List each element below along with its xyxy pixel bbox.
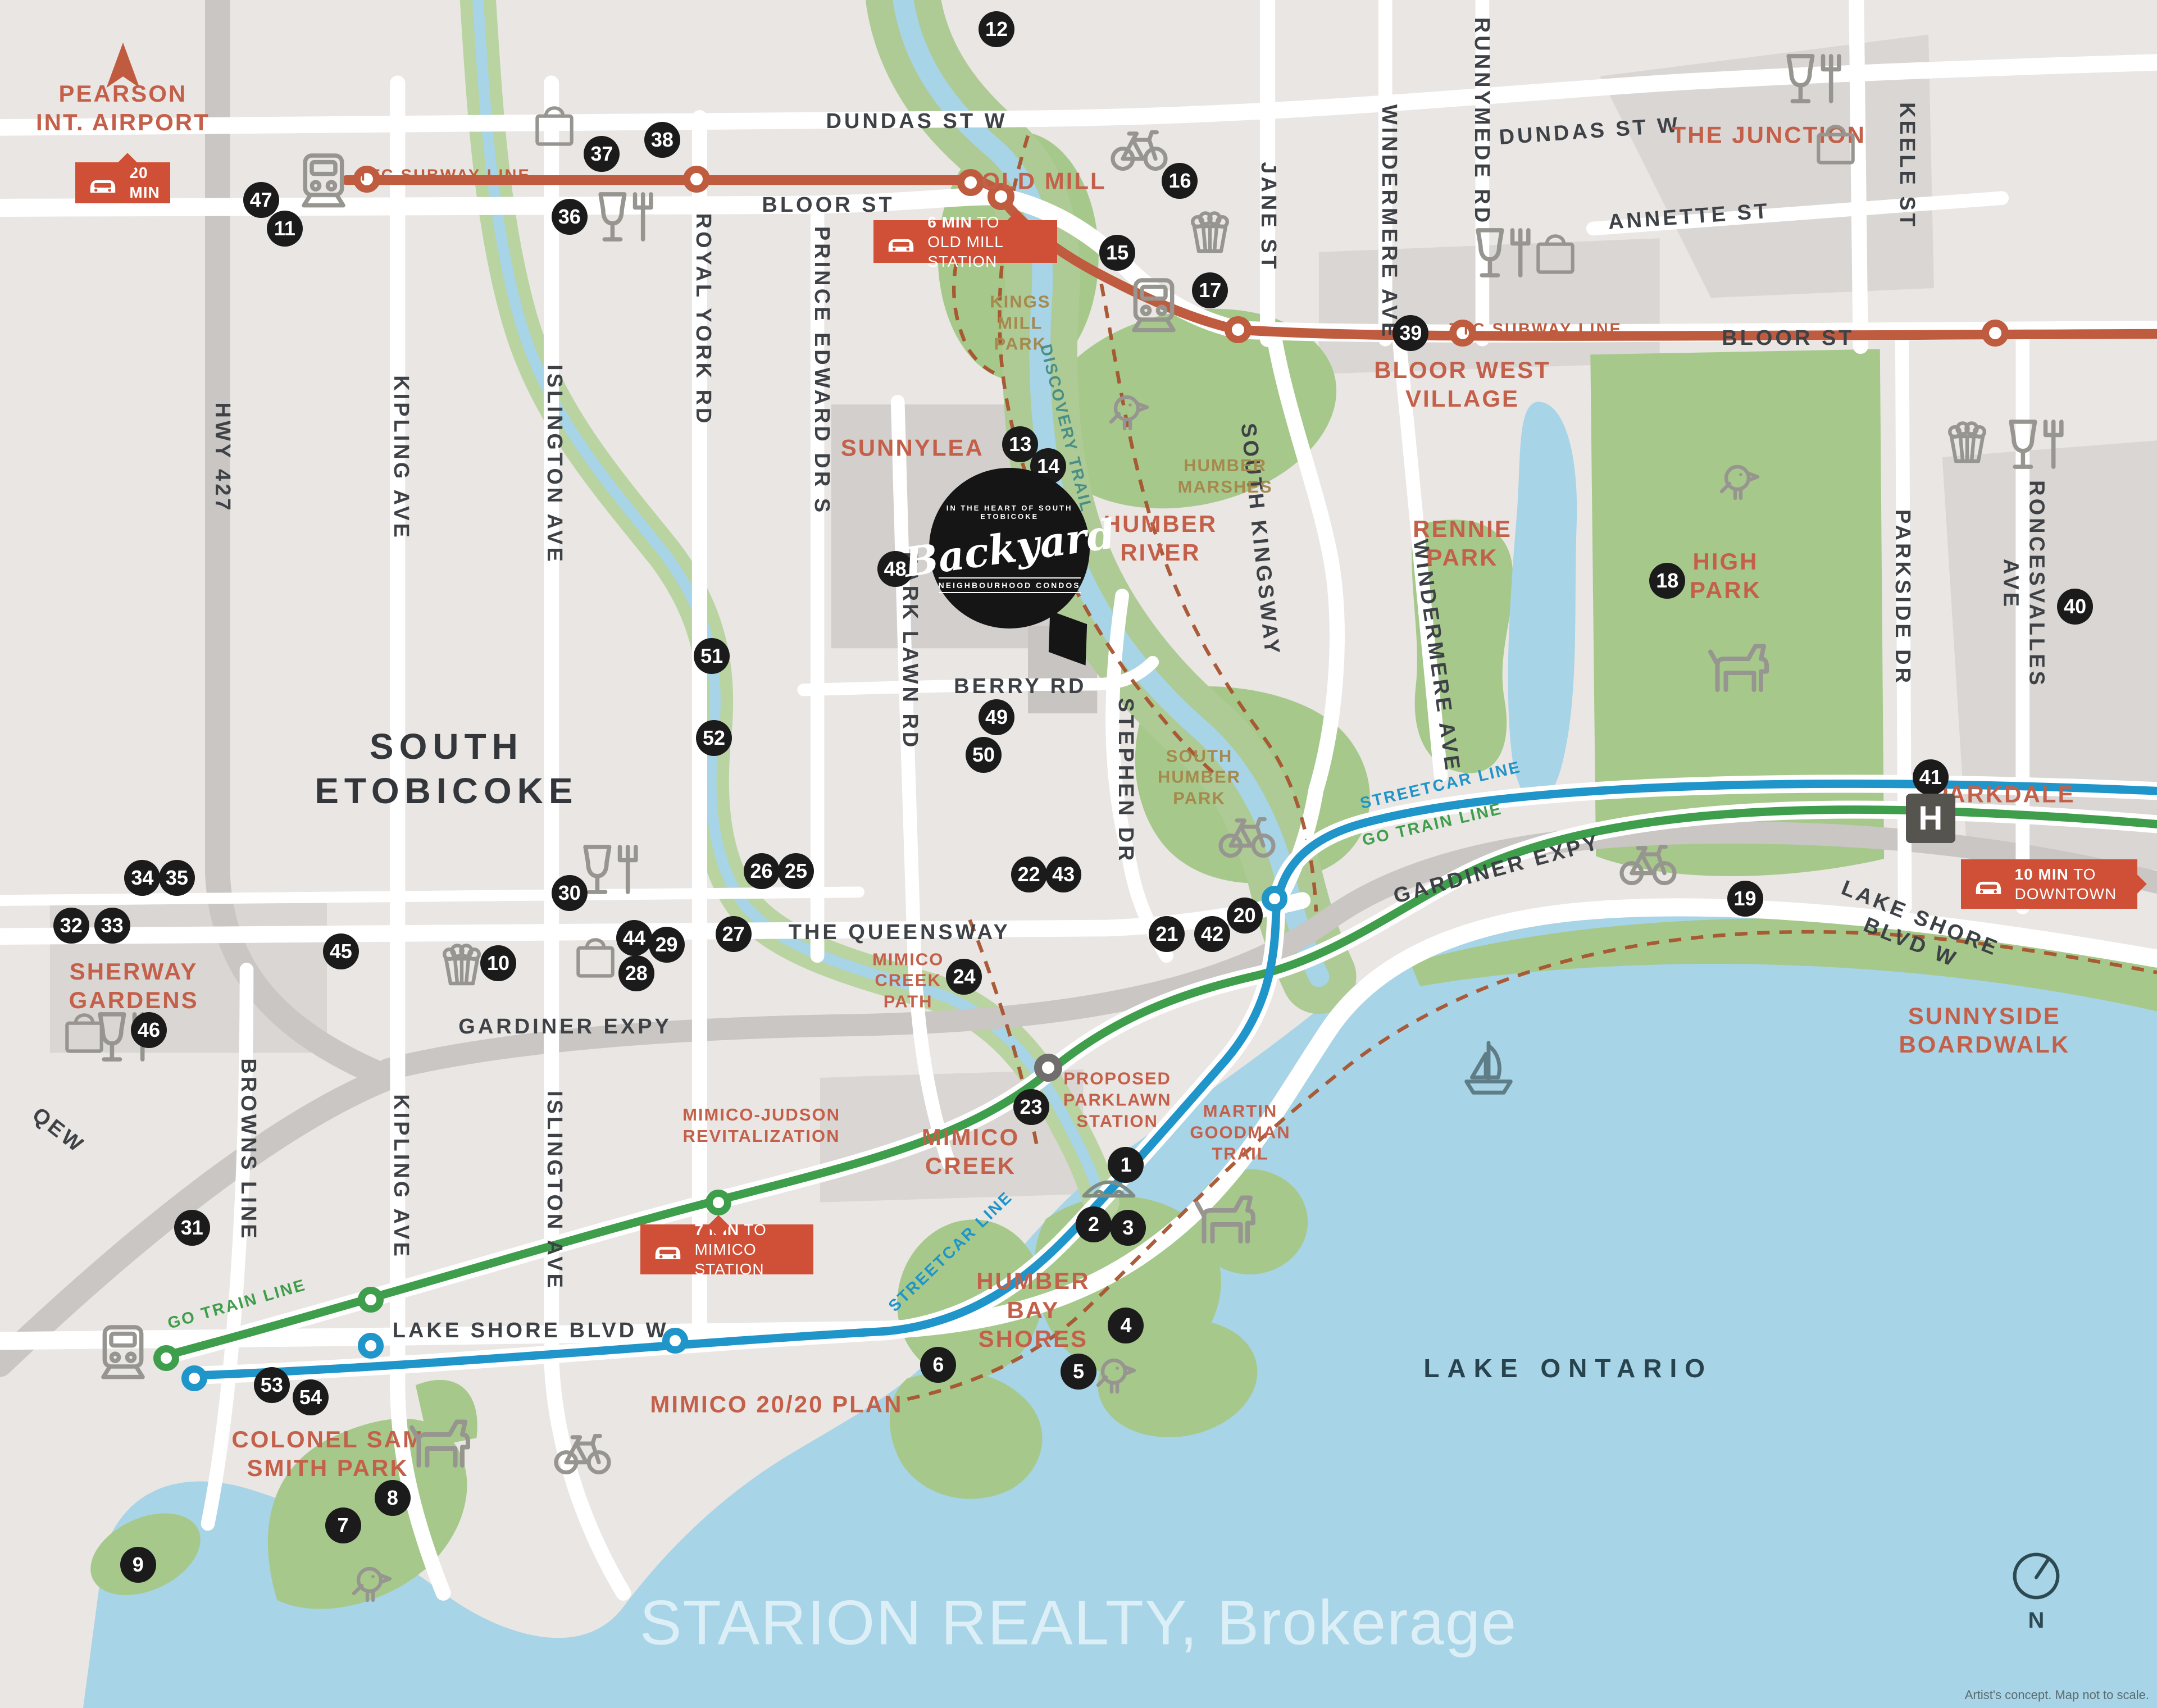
poi-marker-36: 36 <box>552 199 588 235</box>
streetcar-stop-dot <box>662 1328 688 1354</box>
badge-text: 6 MIN TOOLD MILL STATION <box>927 212 1046 271</box>
poi-marker-17: 17 <box>1192 272 1228 308</box>
ttc-subway-station-dot <box>1225 316 1252 343</box>
poi-marker-37: 37 <box>584 136 620 172</box>
ttc-subway-station-dot <box>957 169 984 196</box>
poi-marker-32: 32 <box>53 908 89 944</box>
bag-icon <box>1810 114 1862 172</box>
poi-marker-41: 41 <box>1913 759 1949 795</box>
poi-marker-27: 27 <box>716 916 752 952</box>
poi-marker-3: 3 <box>1110 1210 1146 1246</box>
backyard-logo-bottom-arc: NEIGHBOURHOOD CONDOS <box>939 577 1081 593</box>
poi-marker-30: 30 <box>552 875 588 911</box>
ttc-subway-station-dot <box>683 166 710 193</box>
bike-icon <box>544 1422 621 1475</box>
poi-marker-20: 20 <box>1227 898 1263 933</box>
car-icon <box>650 1235 685 1263</box>
badge-old-mill-6-min: 6 MIN TOOLD MILL STATION <box>873 220 1057 263</box>
poi-marker-5: 5 <box>1061 1354 1096 1390</box>
poi-marker-28: 28 <box>618 955 654 991</box>
poi-marker-46: 46 <box>131 1012 167 1048</box>
compass: N <box>2010 1550 2062 1633</box>
poi-marker-12: 12 <box>979 11 1014 47</box>
streetcar-stop-dot <box>358 1333 384 1359</box>
bag-icon <box>529 95 580 154</box>
streetcar-stop-dot <box>181 1365 207 1391</box>
poi-marker-33: 33 <box>94 908 130 944</box>
hospital-icon: H <box>1906 794 1955 843</box>
badge-mimico-7-min: 7 MIN TOMIMICO STATION <box>640 1224 813 1274</box>
car-icon <box>884 227 918 256</box>
badge-text: 20 MIN <box>129 163 160 202</box>
compass-north-label: N <box>2010 1608 2062 1633</box>
compass-icon <box>2010 1550 2062 1602</box>
poi-marker-34: 34 <box>124 860 160 896</box>
poi-marker-10: 10 <box>480 945 516 981</box>
poi-marker-35: 35 <box>159 860 195 896</box>
dog-icon <box>1705 636 1772 693</box>
backyard-logo: IN THE HEART OF SOUTH ETOBICOKE Backyard… <box>929 468 1090 628</box>
disclaimer-text: Artist's concept. Map not to scale. <box>1965 1688 2149 1702</box>
streetcar-stop-dot <box>1262 886 1287 912</box>
train-icon <box>292 143 355 215</box>
poi-marker-44: 44 <box>616 920 652 956</box>
bird-icon <box>1104 382 1152 435</box>
poi-marker-29: 29 <box>649 927 685 963</box>
basemap-layer <box>0 0 2157 1708</box>
train-icon <box>1122 268 1185 340</box>
poi-marker-50: 50 <box>966 737 1002 773</box>
poi-marker-53: 53 <box>254 1367 290 1403</box>
bird-icon <box>1091 1345 1139 1398</box>
poi-marker-25: 25 <box>778 853 814 889</box>
car-icon <box>1971 870 2006 898</box>
go-train-station-dot <box>153 1345 179 1371</box>
ttc-subway-station-dot <box>1449 320 1476 347</box>
popcorn-icon <box>1940 409 1994 472</box>
bike-icon <box>1100 119 1178 171</box>
poi-marker-6: 6 <box>920 1347 956 1383</box>
poi-marker-11: 11 <box>267 211 303 247</box>
poi-marker-7: 7 <box>325 1507 361 1543</box>
go-train-station-dot <box>358 1287 384 1313</box>
poi-marker-4: 4 <box>1108 1308 1144 1343</box>
poi-marker-21: 21 <box>1149 916 1185 952</box>
poi-marker-54: 54 <box>293 1379 329 1415</box>
badge-pearson-20-min: 20 MIN <box>75 162 170 203</box>
airport-direction-icon <box>104 41 142 89</box>
wine-icon <box>1781 48 1847 109</box>
poi-marker-43: 43 <box>1045 857 1081 892</box>
poi-marker-16: 16 <box>1162 163 1198 199</box>
wine-icon <box>593 186 659 247</box>
wine-icon <box>1470 222 1536 283</box>
go-train-station-dot <box>706 1190 731 1215</box>
neighbourhood-map: HWY 427KIPLING AVEKIPLING AVEISLINGTON A… <box>0 0 2157 1708</box>
poi-marker-18: 18 <box>1649 563 1685 599</box>
proposed-parklawn-station-dot <box>1034 1054 1062 1082</box>
train-icon <box>92 1315 154 1387</box>
poi-marker-42: 42 <box>1194 916 1230 952</box>
bird-icon <box>347 1554 394 1606</box>
ttc-subway-station-dot <box>1982 320 2009 347</box>
poi-marker-22: 22 <box>1011 857 1047 892</box>
bag-icon <box>570 927 621 986</box>
poi-marker-38: 38 <box>644 122 680 158</box>
bike-icon <box>1609 833 1687 886</box>
badge-downtown-10-min: 10 MIN TODOWNTOWN <box>1961 859 2138 909</box>
poi-marker-39: 39 <box>1393 315 1428 351</box>
poi-marker-1: 1 <box>1108 1147 1144 1183</box>
wine-icon <box>2003 414 2069 475</box>
poi-marker-26: 26 <box>744 853 780 889</box>
bike-icon <box>1208 805 1286 858</box>
poi-marker-52: 52 <box>696 720 732 756</box>
dog-icon <box>407 1412 473 1468</box>
ttc-subway-station-dot <box>353 166 380 193</box>
popcorn-icon <box>1183 199 1237 262</box>
poi-marker-23: 23 <box>1013 1089 1049 1125</box>
bag-icon <box>1530 224 1581 282</box>
poi-marker-51: 51 <box>694 638 730 674</box>
poi-marker-40: 40 <box>2057 589 2093 625</box>
watermark: STARION REALTY, Brokerage <box>640 1586 1518 1659</box>
bird-icon <box>1715 452 1762 504</box>
poi-marker-2: 2 <box>1076 1206 1112 1242</box>
car-icon <box>85 168 120 197</box>
poi-marker-15: 15 <box>1099 235 1135 271</box>
poi-marker-49: 49 <box>979 699 1014 735</box>
badge-text: 10 MIN TODOWNTOWN <box>2015 864 2117 904</box>
poi-marker-31: 31 <box>174 1210 210 1246</box>
poi-marker-9: 9 <box>120 1547 156 1583</box>
poi-marker-45: 45 <box>323 933 359 969</box>
poi-marker-24: 24 <box>946 959 982 995</box>
ttc-subway-station-dot <box>988 183 1014 210</box>
sail-icon <box>1455 1030 1522 1106</box>
poi-marker-47: 47 <box>243 182 279 218</box>
poi-marker-19: 19 <box>1727 881 1763 917</box>
poi-marker-8: 8 <box>375 1480 411 1516</box>
dog-icon <box>1192 1188 1258 1244</box>
